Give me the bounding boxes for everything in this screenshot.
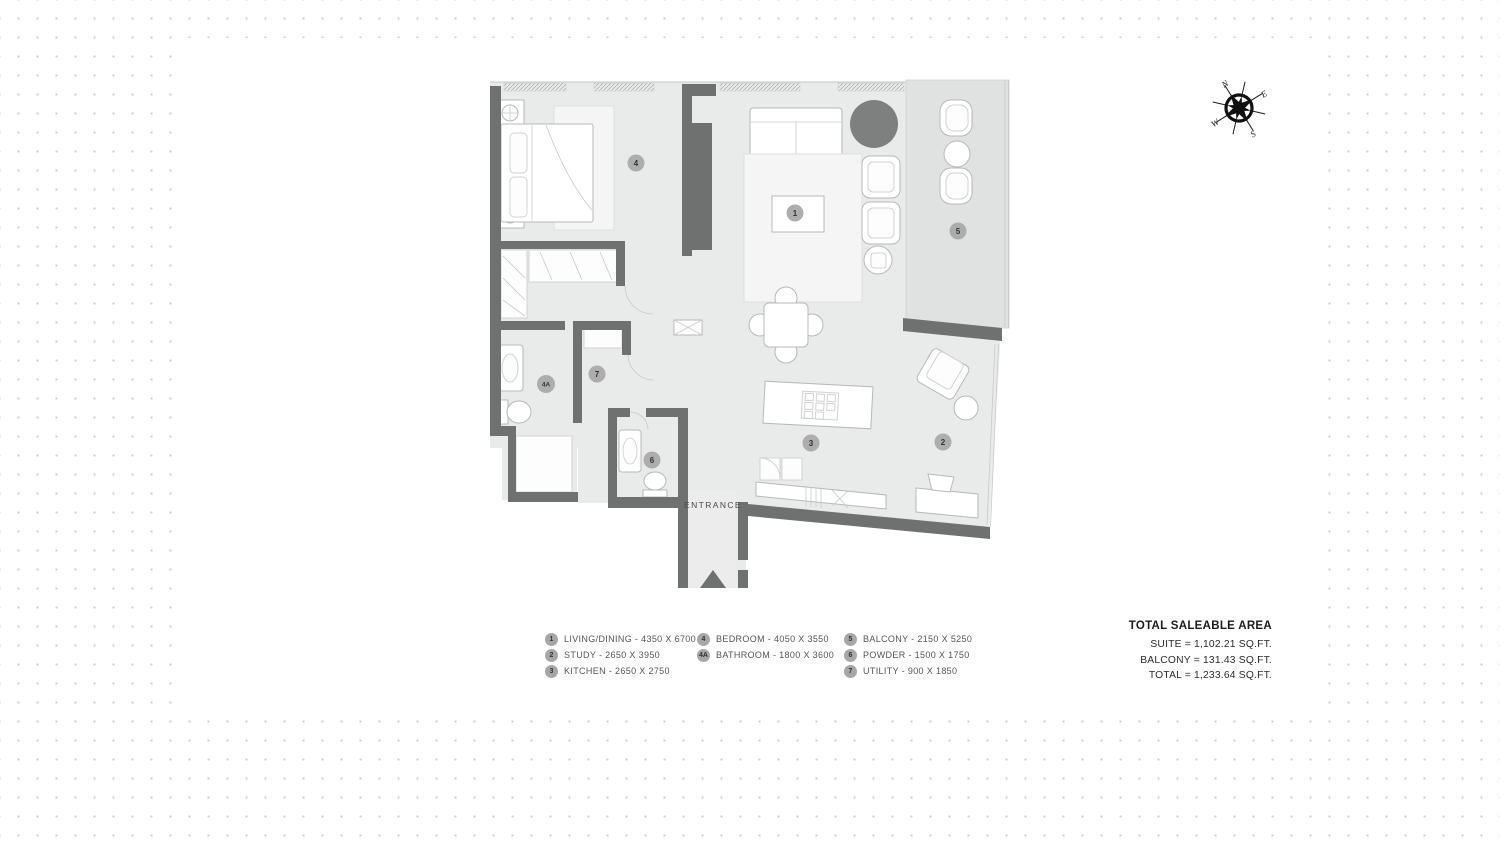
room-marker: 6	[644, 452, 661, 469]
compass-east-label: E	[1258, 88, 1269, 100]
study-side-table	[954, 396, 978, 420]
entrance-label: ENTRANCE	[684, 500, 742, 510]
legend-label: BEDROOM - 4050 X 3550	[716, 634, 829, 644]
balcony-furniture	[940, 100, 972, 204]
round-table-dark	[850, 100, 898, 148]
legend-label: BATHROOM - 1800 X 3600	[716, 650, 834, 660]
page: ENTRANCE 1 2 3 4 4A 5 6 7	[0, 0, 1500, 842]
totals-balcony: BALCONY = 131.43 SQ.FT.	[1090, 653, 1272, 669]
floor-plan: ENTRANCE 1 2 3 4 4A 5 6 7	[488, 78, 1023, 593]
legend-column: 4 BEDROOM - 4050 X 3550 4A BATHROOM - 18…	[697, 631, 834, 663]
room-marker: 3	[803, 435, 820, 452]
balcony-table	[944, 141, 970, 167]
legend-label: POWDER - 1500 X 1750	[863, 650, 970, 660]
legend-marker: 6	[844, 649, 857, 662]
compass-west-label: W	[1209, 116, 1222, 129]
legend-label: KITCHEN - 2650 X 2750	[564, 666, 670, 676]
total-saleable-area: TOTAL SALEABLE AREA SUITE = 1,102.21 SQ.…	[1090, 620, 1272, 684]
svg-text:4A: 4A	[542, 382, 551, 389]
svg-text:3: 3	[809, 439, 814, 448]
toilet-tank	[643, 490, 667, 497]
legend-marker: 5	[844, 633, 857, 646]
totals-suite: SUITE = 1,102.21 SQ.FT.	[1090, 637, 1272, 653]
desk-chair	[928, 474, 954, 492]
toilet	[644, 472, 666, 490]
legend-marker: 7	[844, 665, 857, 678]
room-marker: 7	[589, 366, 606, 383]
entrance: ENTRANCE	[684, 490, 742, 588]
room-marker: 5	[950, 223, 967, 240]
legend-label: LIVING/DINING - 4350 X 6700	[564, 634, 696, 644]
compass-north-label: N	[1219, 78, 1231, 91]
room-marker: 4	[628, 155, 645, 172]
legend: 1 LIVING/DINING - 4350 X 6700 2 STUDY - …	[545, 631, 965, 683]
totals-title: TOTAL SALEABLE AREA	[1090, 620, 1272, 632]
legend-item: 7 UTILITY - 900 X 1850	[844, 663, 972, 679]
legend-marker: 3	[545, 665, 558, 678]
legend-item: 4A BATHROOM - 1800 X 3600	[697, 647, 834, 663]
svg-text:7: 7	[595, 370, 600, 379]
legend-marker: 4A	[697, 649, 710, 662]
entry-closet	[782, 458, 802, 480]
entry-closet	[760, 458, 780, 480]
dining-table	[764, 303, 808, 347]
legend-marker: 2	[545, 649, 558, 662]
compass-rose-icon: N E S W	[1203, 74, 1275, 146]
svg-text:2: 2	[941, 438, 946, 447]
legend-item: 4 BEDROOM - 4050 X 3550	[697, 631, 834, 647]
cooktop	[801, 391, 838, 420]
legend-item: 6 POWDER - 1500 X 1750	[844, 647, 972, 663]
svg-text:6: 6	[650, 456, 655, 465]
totals-total: TOTAL = 1,233.64 SQ.FT.	[1090, 668, 1272, 684]
room-marker: 1	[787, 205, 804, 222]
shower	[516, 436, 572, 492]
legend-item: 5 BALCONY - 2150 X 5250	[844, 631, 972, 647]
legend-label: BALCONY - 2150 X 5250	[863, 634, 972, 644]
legend-column: 1 LIVING/DINING - 4350 X 6700 2 STUDY - …	[545, 631, 696, 679]
legend-column: 5 BALCONY - 2150 X 5250 6 POWDER - 1500 …	[844, 631, 972, 679]
legend-item: 1 LIVING/DINING - 4350 X 6700	[545, 631, 696, 647]
pillow	[510, 133, 527, 173]
toilet	[507, 401, 531, 423]
legend-item: 3 KITCHEN - 2650 X 2750	[545, 663, 696, 679]
legend-marker: 4	[697, 633, 710, 646]
svg-text:1: 1	[793, 209, 798, 218]
room-marker: 2	[935, 434, 952, 451]
bedroom-furniture	[497, 100, 614, 230]
room-marker: 4A	[537, 375, 555, 393]
legend-item: 2 STUDY - 2650 X 3950	[545, 647, 696, 663]
legend-marker: 1	[545, 633, 558, 646]
legend-label: UTILITY - 900 X 1850	[863, 666, 957, 676]
svg-text:5: 5	[956, 227, 961, 236]
pillow	[510, 177, 527, 217]
shelf	[584, 328, 622, 348]
legend-label: STUDY - 2650 X 3950	[564, 650, 660, 660]
svg-text:4: 4	[634, 159, 639, 168]
